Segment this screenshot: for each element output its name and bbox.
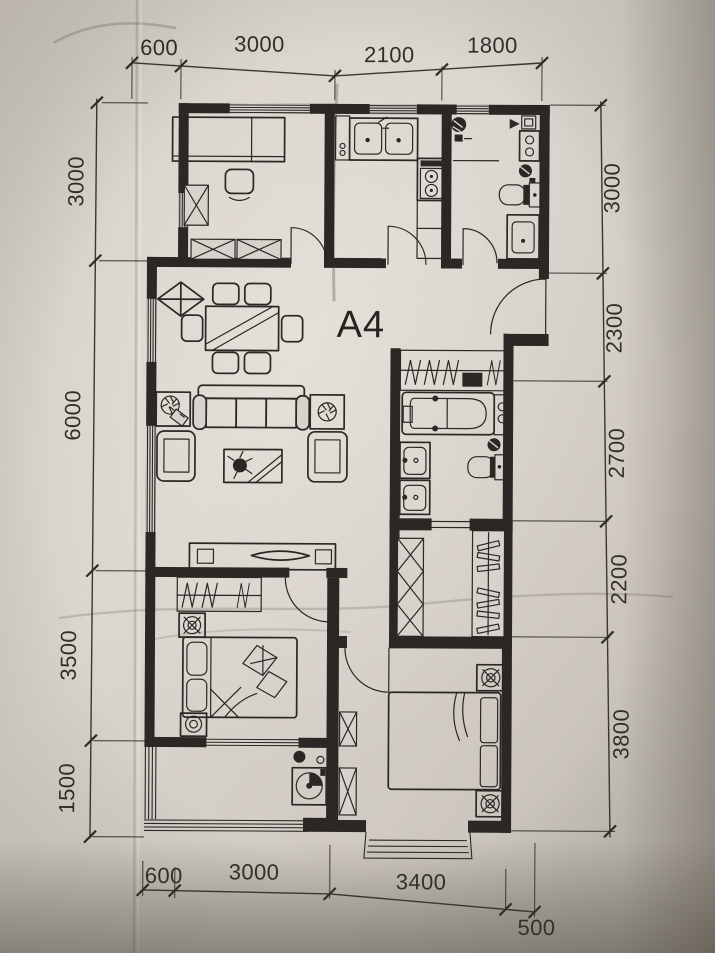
floor-plan-photo: A4 [0,0,715,953]
photo-shading [0,0,715,953]
